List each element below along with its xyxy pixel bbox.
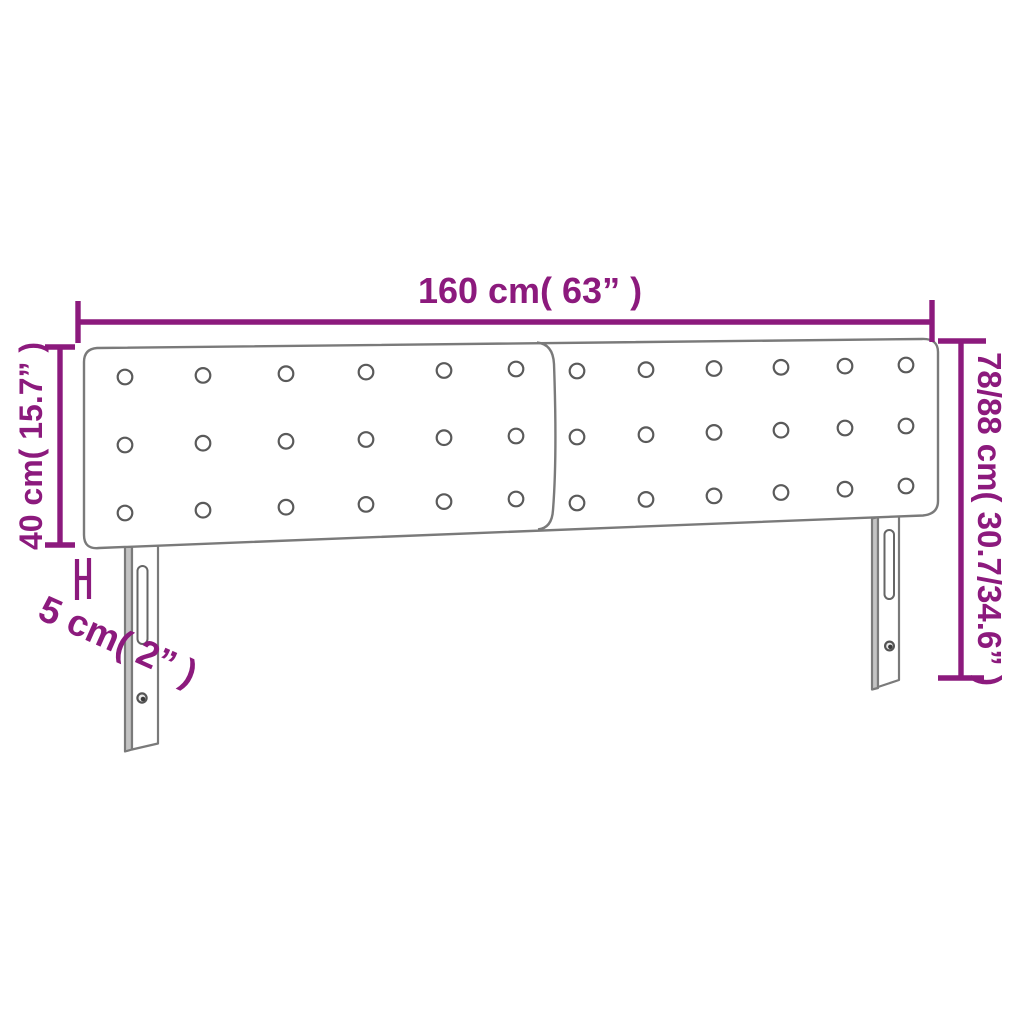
- tufting-button: [838, 359, 853, 374]
- headboard-diagram: 160 cm( 63” ) 78/88 cm( 30.7/34.6” ) 40 …: [0, 0, 1024, 1024]
- tufting-button: [437, 430, 452, 445]
- panel-height-label: 40 cm( 15.7” ): [13, 342, 49, 550]
- right-leg-screw-dot: [888, 645, 892, 649]
- tufting-button: [707, 361, 722, 376]
- tufting-button: [437, 363, 452, 378]
- legs: [125, 516, 899, 752]
- tufting-button: [196, 503, 211, 518]
- tufting-button: [509, 362, 524, 377]
- tufting-button: [359, 432, 374, 447]
- tufting-button: [707, 425, 722, 440]
- tufting-button: [570, 496, 585, 511]
- tufting-button: [774, 360, 789, 375]
- tufting-button: [359, 365, 374, 380]
- diagram-canvas: 160 cm( 63” ) 78/88 cm( 30.7/34.6” ) 40 …: [0, 0, 1024, 1024]
- tufting-button: [196, 436, 211, 451]
- tufting-button: [279, 434, 294, 449]
- tufting-button: [359, 497, 374, 512]
- tufting-button: [118, 438, 133, 453]
- tufting-button: [570, 364, 585, 379]
- right-leg-slot: [885, 530, 895, 599]
- tufting-button: [838, 482, 853, 497]
- tufting-button: [118, 506, 133, 521]
- tufting-button: [899, 479, 914, 494]
- tufting-button: [118, 370, 133, 385]
- panel-height-dimension-line: [45, 347, 75, 545]
- depth-dimension-mark: [77, 558, 89, 600]
- tufting-button: [838, 421, 853, 436]
- tufting-button: [196, 368, 211, 383]
- depth-label: 5 cm( 2” ): [33, 588, 204, 694]
- height-label: 78/88 cm( 30.7/34.6” ): [971, 352, 1008, 686]
- left-leg-screw-dot: [141, 697, 146, 702]
- tufting-button: [639, 362, 654, 377]
- tufting-button: [570, 430, 585, 445]
- width-label: 160 cm( 63” ): [418, 270, 642, 311]
- tufting-button: [707, 489, 722, 504]
- tufting-button: [437, 494, 452, 509]
- tufting-button: [509, 492, 524, 507]
- tufting-button: [774, 485, 789, 500]
- tufting-button: [279, 500, 294, 515]
- tufting-button: [279, 366, 294, 381]
- tufting-button: [899, 419, 914, 434]
- tufting-button: [509, 429, 524, 444]
- tufting-button: [899, 358, 914, 373]
- tufting-button: [639, 427, 654, 442]
- tufting-button: [774, 423, 789, 438]
- tufting-button: [639, 492, 654, 507]
